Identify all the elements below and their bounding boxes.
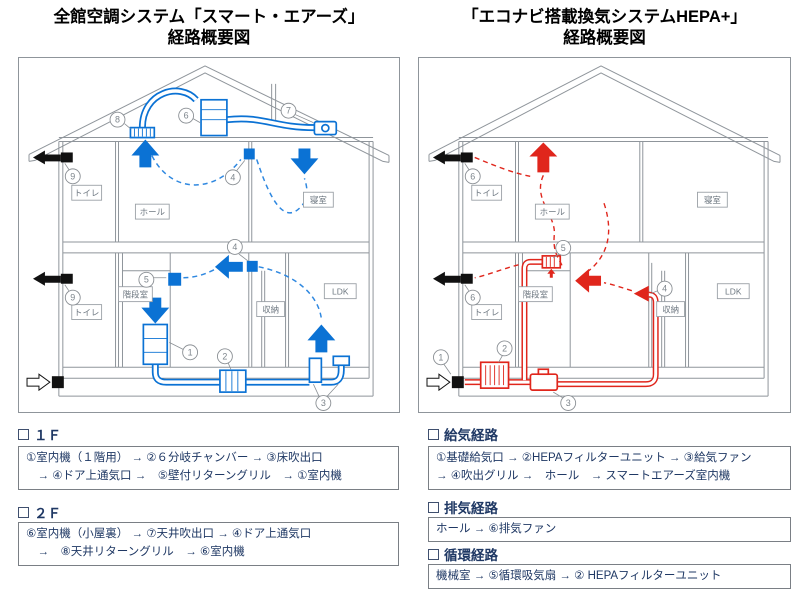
left-title-line2: 経路概要図: [18, 28, 400, 49]
markers: 9 8 6 7 4 9 5 1 4 2 3: [65, 103, 331, 410]
svg-text:2: 2: [502, 343, 507, 353]
section-heading-1f-text: １Ｆ: [34, 428, 61, 443]
supply-up-arrow-ldk: [307, 324, 335, 352]
indoor-unit-1f-box: [143, 324, 167, 364]
svg-text:9: 9: [70, 293, 75, 303]
foundation-inlet: [427, 374, 464, 390]
marker-6-1f: 6: [465, 290, 480, 305]
hepa-ventilation-svg: トイレ ホール 寝室 トイレ 階段室 収納 LDK 6 6 5 4 1 2 3: [419, 58, 790, 412]
marker-2: 2: [497, 341, 512, 356]
right-title-line1: 「エコナビ搭載換気システムHEPA+」: [418, 7, 791, 28]
house-structure: [429, 66, 780, 396]
wall-return-grille: [168, 273, 181, 286]
svg-text:1: 1: [188, 347, 193, 357]
route-line: ⑥室内機（小屋裏） → ⑦天井吹出口 → ④ドア上通気口: [26, 526, 391, 544]
room-label-toilet-2f: トイレ: [74, 188, 99, 198]
section-heading-1f: １Ｆ: [18, 424, 61, 444]
svg-text:6: 6: [470, 293, 475, 303]
marker-4: 4: [657, 281, 672, 296]
floor-indoor-unit: [143, 324, 167, 364]
foundation-inlet-box: [52, 376, 64, 388]
section-heading-exhaust-text: 排気経路: [444, 501, 498, 516]
exhaust-vent-1f: [61, 274, 73, 284]
route-box-2f: ⑥室内機（小屋裏） → ⑦天井吹出口 → ④ドア上通気口 → ⑧天井リターングリ…: [18, 522, 399, 566]
square-bullet-icon: [428, 502, 439, 513]
house-frame-lines: [429, 66, 780, 396]
route-box-exhaust: ホール → ⑥排気ファン: [428, 517, 791, 542]
section-heading-exhaust: 排気経路: [428, 497, 498, 517]
room-label-toilet-1f: トイレ: [474, 308, 499, 318]
marker-5: 5: [139, 272, 154, 287]
svg-text:4: 4: [662, 284, 667, 294]
foundation-inlet-box: [452, 376, 464, 388]
marker-1: 1: [183, 345, 198, 360]
left-title-line1: 全館空調システム「スマート・エアーズ」: [18, 7, 400, 28]
room-label-hall: ホール: [540, 207, 566, 217]
floor-outlet-box: [333, 356, 349, 365]
branch-chamber: [220, 370, 246, 392]
circulation-fan-box: [542, 256, 560, 268]
indoor-unit-attic-box: [201, 100, 227, 136]
square-bullet-icon: [428, 429, 439, 440]
square-bullet-icon: [428, 549, 439, 560]
smart-airs-diagram: トイレ ホール 寝室 トイレ 階段室 収納 LDK 9 8 6 7 4 9 5 …: [18, 57, 400, 413]
exhaust-arrow-2f: [433, 150, 461, 164]
room-label-stairs: 階段室: [523, 290, 548, 300]
marker-8: 8: [110, 112, 125, 127]
supply-fan: [530, 369, 557, 390]
marker-9-1f: 9: [65, 290, 80, 305]
room-label-toilet-1f: トイレ: [74, 308, 99, 318]
section-heading-circulation-text: 循環経路: [444, 548, 498, 563]
room-label-ldk: LDK: [725, 287, 742, 297]
svg-text:5: 5: [144, 275, 149, 285]
svg-text:6: 6: [184, 111, 189, 121]
room-label-stairs: 階段室: [123, 290, 148, 300]
svg-text:1: 1: [438, 352, 443, 362]
blowout-grille: [634, 286, 649, 302]
svg-text:6: 6: [470, 171, 475, 181]
marker-3: 3: [561, 396, 576, 411]
hepa-filter-unit: [481, 362, 509, 388]
attic-indoor-unit: [201, 100, 227, 136]
hepa-ventilation-diagram: トイレ ホール 寝室 トイレ 階段室 収納 LDK 6 6 5 4 1 2 3: [418, 57, 791, 413]
exhaust-vent-2f: [61, 152, 73, 162]
circulation-fan: [542, 256, 560, 278]
section-heading-supply: 給気経路: [428, 424, 498, 444]
exhaust-arrow-1f: [433, 272, 461, 286]
supply-fan-tab: [538, 369, 548, 374]
room-label-bedroom: 寝室: [704, 195, 721, 205]
section-heading-circulation: 循環経路: [428, 544, 498, 564]
svg-text:4: 4: [230, 172, 235, 182]
smart-airs-svg: トイレ ホール 寝室 トイレ 階段室 収納 LDK 9 8 6 7 4 9 5 …: [19, 58, 399, 412]
room-label-toilet-2f: トイレ: [474, 188, 499, 198]
ceiling-blowout-fan: [322, 125, 329, 132]
marker-5: 5: [556, 240, 571, 255]
supply-up-arrow-2f: [131, 140, 159, 168]
supply-fan-box: [530, 374, 557, 390]
marker-1: 1: [433, 350, 448, 365]
route-line: → ④ドア上通気口 → ⑤壁付リターングリル → ①室内機: [26, 468, 391, 486]
exhaust-vents: [33, 150, 73, 285]
svg-text:9: 9: [70, 171, 75, 181]
room-label-hall: ホール: [140, 207, 166, 217]
room-label-bedroom: 寝室: [310, 195, 327, 205]
route-box-supply: ①基礎給気口 → ②HEPAフィルターユニット → ③給気ファン → ④吹出グリ…: [428, 446, 791, 490]
left-title: 全館空調システム「スマート・エアーズ」 経路概要図: [18, 7, 400, 48]
marker-4-1f: 4: [227, 239, 242, 254]
marker-9-2f: 9: [65, 169, 80, 184]
vent-left-arrow-1f: [215, 255, 243, 279]
room-label-closet: 収納: [662, 305, 679, 315]
section-heading-2f-text: ２Ｆ: [34, 506, 61, 521]
foundation-inlet: [27, 374, 64, 390]
exhaust-arrow-2f: [33, 150, 61, 164]
svg-text:5: 5: [561, 243, 566, 253]
circulation-up-arrow-small: [547, 269, 555, 278]
square-bullet-icon: [18, 507, 29, 518]
route-box-1f: ①室内機（１階用） → ②６分岐チャンバー → ③床吹出口 → ④ドア上通気口 …: [18, 446, 399, 490]
route-box-circulation: 機械室 → ⑤循環吸気扇 → ② HEPAフィルターユニット: [428, 564, 791, 589]
room-label-ldk: LDK: [332, 287, 349, 297]
exhaust-vents: [433, 150, 473, 285]
marker-6: 6: [179, 108, 194, 123]
svg-text:3: 3: [321, 398, 326, 408]
foundation-inlet-arrow: [27, 374, 50, 390]
route-line: → ⑧天井リターングリル → ⑥室内機: [26, 544, 391, 562]
ceiling-blowout: [314, 122, 336, 135]
svg-text:4: 4: [232, 242, 237, 252]
supply-down-arrow-bedroom: [291, 148, 319, 174]
exhaust-vent-2f: [461, 152, 473, 162]
square-bullet-icon: [18, 429, 29, 440]
section-heading-2f: ２Ｆ: [18, 502, 61, 522]
route-line: ①基礎給気口 → ②HEPAフィルターユニット → ③給気ファン: [436, 450, 783, 468]
floor-outlet-riser: [309, 358, 321, 382]
route-line: ①室内機（１階用） → ②６分岐チャンバー → ③床吹出口: [26, 450, 391, 468]
route-line: ホール → ⑥排気ファン: [436, 521, 783, 539]
chamber-box: [220, 370, 246, 392]
marker-3: 3: [316, 396, 331, 411]
svg-text:8: 8: [115, 115, 120, 125]
foundation-inlet-arrow: [427, 374, 450, 390]
room-labels: トイレ ホール 寝室 トイレ 階段室 収納 LDK: [472, 185, 749, 319]
route-line: 機械室 → ⑤循環吸気扇 → ② HEPAフィルターユニット: [436, 568, 783, 586]
exhaust-arrow-1f: [33, 272, 61, 286]
exhaust-vent-1f: [461, 274, 473, 284]
room-label-closet: 収納: [262, 305, 279, 315]
section-heading-supply-text: 給気経路: [444, 428, 498, 443]
marker-2: 2: [217, 349, 232, 364]
right-title-line2: 経路概要図: [418, 28, 791, 49]
supply-up-arrow-2f: [529, 143, 557, 173]
marker-6-2f: 6: [465, 169, 480, 184]
svg-text:7: 7: [286, 106, 291, 116]
ceiling-return-grille: [130, 128, 154, 138]
right-title: 「エコナビ搭載換気システムHEPA+」 経路概要図: [418, 7, 791, 48]
marker-7: 7: [281, 103, 296, 118]
marker-leader-lines: [65, 115, 338, 397]
svg-text:2: 2: [222, 351, 227, 361]
marker-4-2f: 4: [225, 170, 240, 185]
supply-left-arrow-1f: [575, 269, 601, 293]
door-top-vent-2f: [244, 148, 255, 159]
svg-text:3: 3: [566, 398, 571, 408]
door-top-vent-1f: [247, 261, 258, 272]
route-line: → ④吹出グリル → ホール → スマートエアーズ室内機: [436, 468, 783, 486]
